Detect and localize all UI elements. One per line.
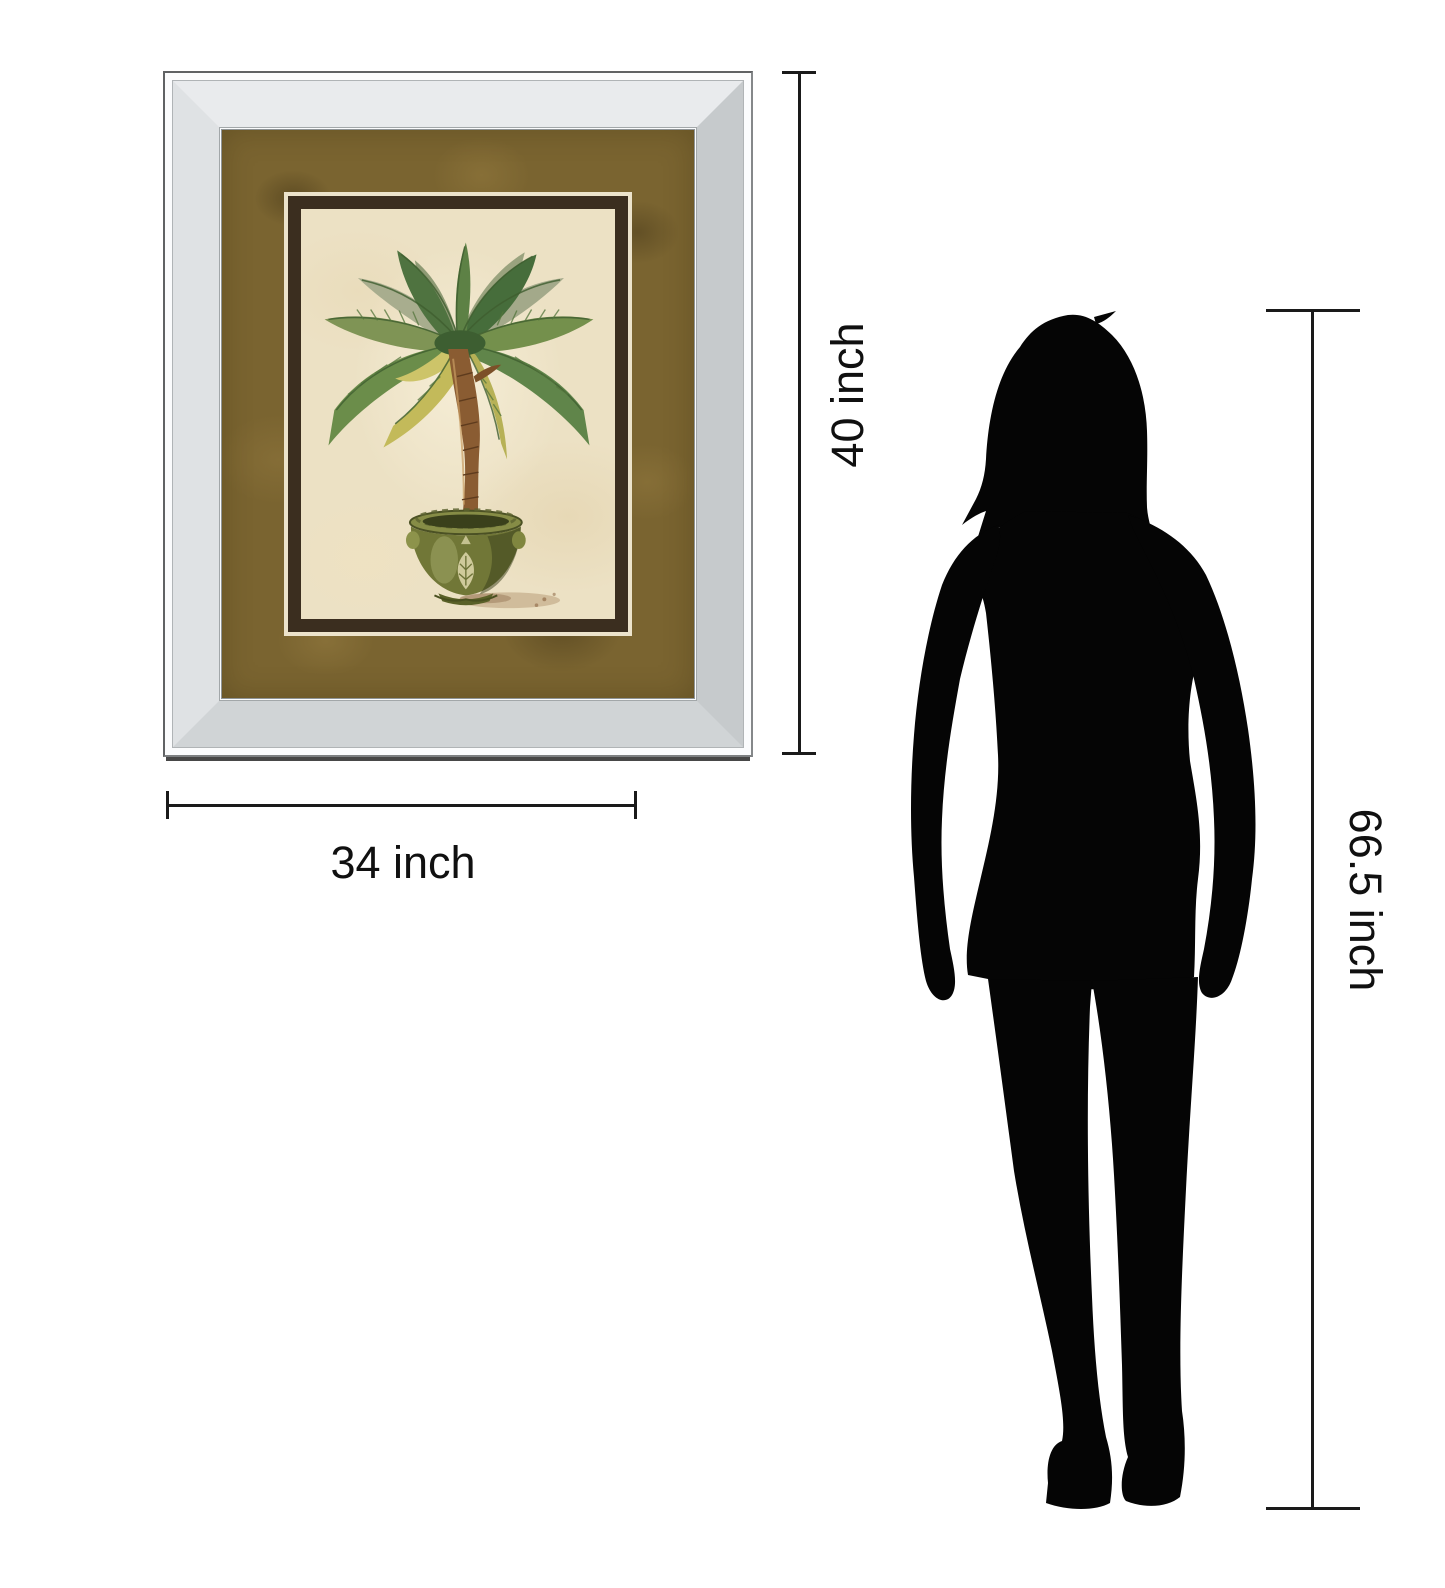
width-dimension-label: 34 inch (293, 840, 513, 886)
framed-artwork (163, 71, 753, 757)
palm-illustration (301, 209, 615, 619)
planter-pot (406, 510, 526, 606)
person-silhouette (898, 311, 1282, 1513)
height-dimension-cap-bottom (782, 752, 816, 755)
woman-silhouette-figure (898, 311, 1282, 1513)
mat-board (222, 130, 694, 698)
person-height-cap-bottom (1266, 1507, 1360, 1510)
person-height-dimension-line (1311, 310, 1314, 1510)
person-height-dimension-label: 66.5 inch (1342, 760, 1388, 1040)
palm-trunk (448, 349, 501, 522)
size-comparison-diagram: 40 inch 34 inch 66. (0, 0, 1445, 1588)
width-dimension-line (167, 804, 637, 807)
silhouette-left-leg (988, 979, 1112, 1509)
width-dimension-cap-right (634, 791, 637, 819)
palm-print (301, 209, 615, 619)
mat-opening-border (284, 192, 632, 636)
silhouette-hair-flick (1094, 311, 1116, 324)
silhouette-right-leg (1092, 977, 1198, 1506)
person-height-cap-top (1266, 309, 1360, 312)
height-dimension-line (798, 72, 801, 755)
width-dimension-cap-left (166, 791, 169, 819)
height-dimension-label: 40 inch (825, 285, 871, 505)
height-dimension-cap-top (782, 71, 816, 74)
